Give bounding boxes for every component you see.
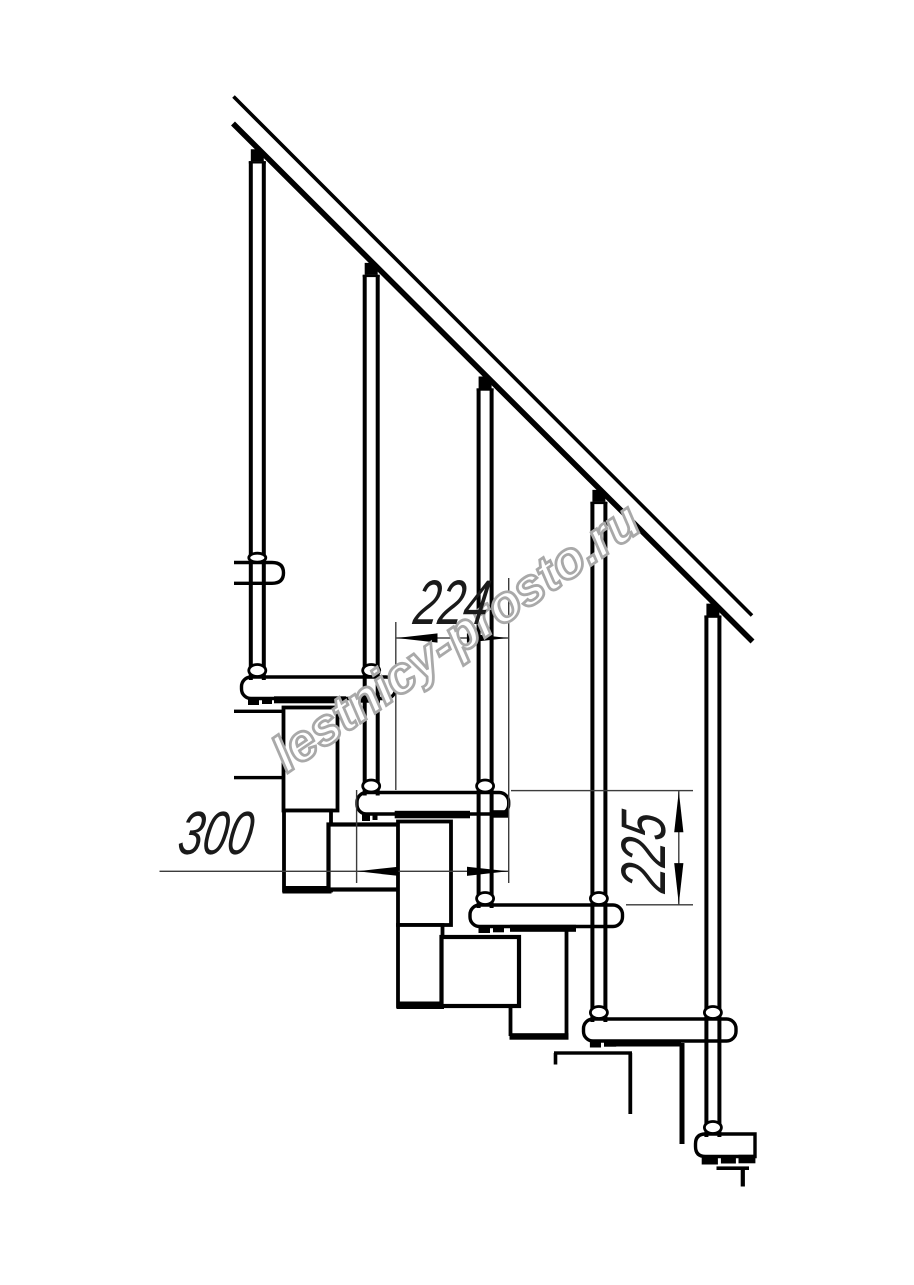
svg-text:225: 225 — [608, 805, 679, 897]
svg-text:224: 224 — [409, 567, 496, 638]
svg-text:300: 300 — [174, 799, 259, 867]
